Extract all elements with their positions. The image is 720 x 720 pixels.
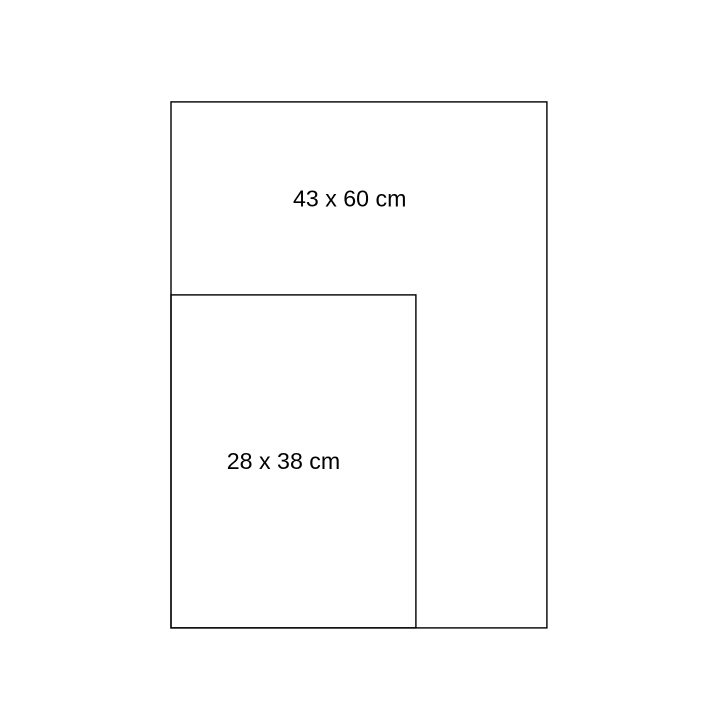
svg-text:43 x 60 cm: 43 x 60 cm <box>293 186 406 212</box>
svg-text:28 x 38 cm: 28 x 38 cm <box>227 448 340 474</box>
